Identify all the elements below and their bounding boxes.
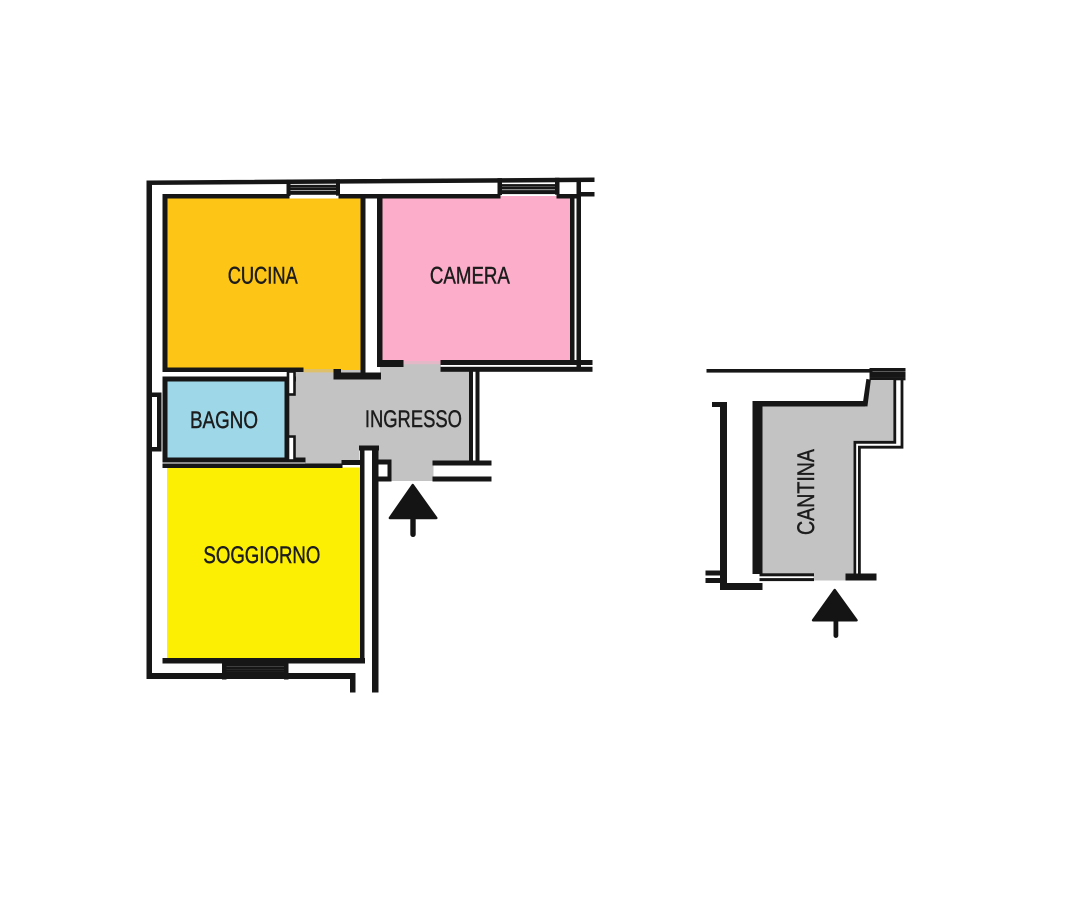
svg-text:BAGNO: BAGNO (190, 407, 258, 434)
svg-text:CUCINA: CUCINA (228, 263, 298, 290)
svg-text:CANTINA: CANTINA (793, 449, 820, 535)
svg-text:INGRESSO: INGRESSO (365, 406, 462, 433)
svg-text:CAMERA: CAMERA (430, 263, 510, 290)
svg-text:SOGGIORNO: SOGGIORNO (203, 542, 320, 569)
